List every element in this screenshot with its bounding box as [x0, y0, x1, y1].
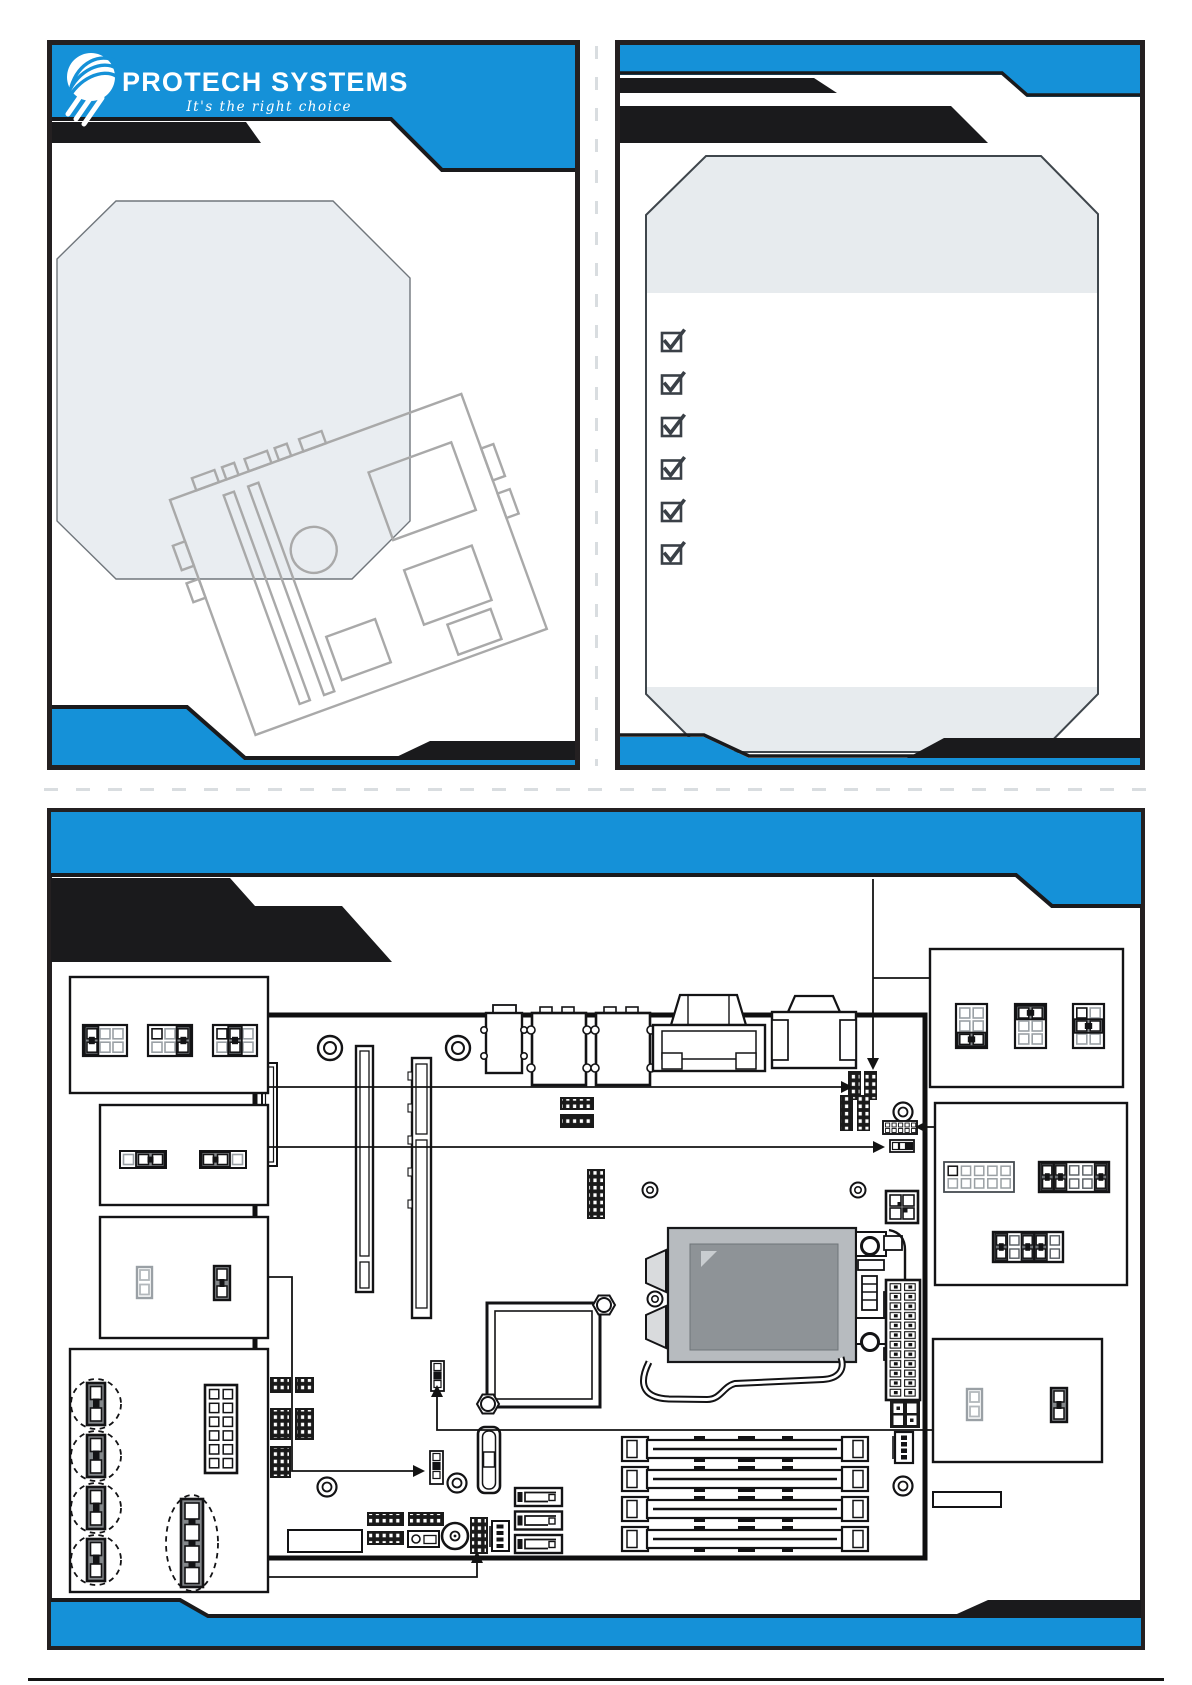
- header-2x5-caps-125: [1039, 1162, 1109, 1192]
- card-title-band: [646, 156, 1098, 293]
- footer-black-wedge: [907, 738, 1140, 758]
- jumper-1x2-short: [214, 1266, 230, 1300]
- rear-usb-stack: [591, 1007, 655, 1085]
- motherboard-diagram: [255, 995, 925, 1558]
- mounting-hole: [851, 1183, 866, 1198]
- capped-jumper-circled: [87, 1435, 105, 1477]
- checkbox-checked-icon: [662, 374, 684, 394]
- header-2x5-open: [944, 1162, 1014, 1192]
- capped-header-1x4-circled: [181, 1499, 203, 1587]
- callout-box-jumpers-1x3: [100, 1105, 268, 1205]
- capped-jumper-circled: [87, 1383, 105, 1425]
- label-box-empty: [933, 1492, 1001, 1507]
- checkbox-checked-icon: [662, 459, 684, 479]
- dimm-slot: [622, 1526, 868, 1552]
- jumper-3x2-cap-row1: [1015, 1004, 1046, 1048]
- callout-box-headers-2x5: [935, 1103, 1127, 1285]
- header-2x6: [205, 1385, 237, 1473]
- callout-box-jumpers-1x2: [100, 1217, 268, 1338]
- capped-jumper-circled: [87, 1487, 105, 1529]
- atx-24pin-power: [886, 1280, 920, 1400]
- jumper-1x3-cap-23: [120, 1151, 166, 1168]
- pin-header-2x5-small: [883, 1121, 917, 1134]
- brochure-page: PROTECH SYSTEMS It's the right choice: [0, 0, 1192, 1685]
- atx-4pin-power: [886, 1191, 918, 1223]
- board-layout-panel: [47, 808, 1145, 1650]
- brand-logo-text: PROTECH SYSTEMS: [122, 67, 409, 97]
- callout-box-jumpers-1x2-b: [933, 1339, 1102, 1462]
- sata-port: [515, 1488, 562, 1506]
- mounting-hole: [448, 1474, 467, 1493]
- header-2x5-caps-134: [993, 1232, 1063, 1262]
- jumper-1x2-open: [967, 1389, 982, 1420]
- dimm-slot: [622, 1496, 868, 1522]
- header-black-band: [620, 106, 988, 143]
- white-connector-small: [408, 1531, 439, 1547]
- jumper-3x2-cap-row3: [956, 1004, 987, 1048]
- header-black-strip: [620, 78, 837, 93]
- callout-box-jumpers-3x2: [930, 949, 1123, 1087]
- checkbox-checked-icon: [662, 501, 684, 521]
- jumper-3x2-cap-row2: [1073, 1004, 1104, 1048]
- jumper-2x3-cap-col2: [213, 1025, 257, 1056]
- sata-port: [515, 1512, 562, 1530]
- front-cover-panel: PROTECH SYSTEMS It's the right choice: [47, 40, 580, 770]
- mounting-hole: [318, 1478, 337, 1497]
- clear-cmos-jumper: [430, 1451, 443, 1484]
- fold-line-horizontal: [44, 788, 1146, 791]
- capped-jumper-circled: [87, 1539, 105, 1581]
- rear-audio-jack: [481, 1005, 527, 1073]
- checkbox-checked-icon: [662, 416, 684, 436]
- mounting-hole: [894, 1477, 913, 1496]
- white-connector-4pin: [490, 1521, 509, 1551]
- buzzer: [442, 1523, 468, 1549]
- jumper-2x3-cap-col3: [148, 1025, 192, 1056]
- fold-line-vertical: [595, 46, 598, 766]
- silkscreen-label-box: [288, 1530, 362, 1552]
- jumper-1x2-short: [1051, 1388, 1067, 1422]
- pcie-x16-slot: [408, 1058, 431, 1318]
- checklist-panel: [615, 40, 1145, 770]
- sata-port: [515, 1535, 562, 1553]
- fan-connector-4pin: [893, 1432, 913, 1463]
- cpu-socket: [646, 1228, 856, 1362]
- rear-usb-stack: [527, 1007, 591, 1085]
- brand-tagline: It's the right choice: [185, 99, 352, 115]
- battery-holder: [478, 1427, 500, 1493]
- page-trim-line: [28, 1678, 1164, 1681]
- front-panel-header: [470, 1517, 488, 1554]
- checkbox-checked-icon: [662, 331, 684, 351]
- callout-box-front-panel-group: [70, 1349, 268, 1592]
- callout-box-jumpers-2x3: [70, 977, 268, 1093]
- content-card-octagon: [646, 156, 1098, 752]
- jumper-1x3-cap-12: [200, 1151, 246, 1168]
- dimm-slot: [622, 1466, 868, 1492]
- mounting-hole: [318, 1036, 342, 1060]
- pci-slot: [356, 1046, 373, 1292]
- pin-header-2x9: [587, 1169, 605, 1219]
- dimm-slot: [622, 1436, 868, 1462]
- jumper-1x2-open: [137, 1267, 152, 1298]
- pin-header-1x3-small: [890, 1140, 914, 1152]
- mounting-hole: [446, 1036, 470, 1060]
- jumper-2x3-cap-col1: [83, 1025, 127, 1056]
- mounting-hole: [894, 1103, 913, 1122]
- checkbox-checked-icon: [662, 544, 684, 564]
- power-connector-2x2: [890, 1400, 920, 1428]
- mounting-hole: [643, 1183, 658, 1198]
